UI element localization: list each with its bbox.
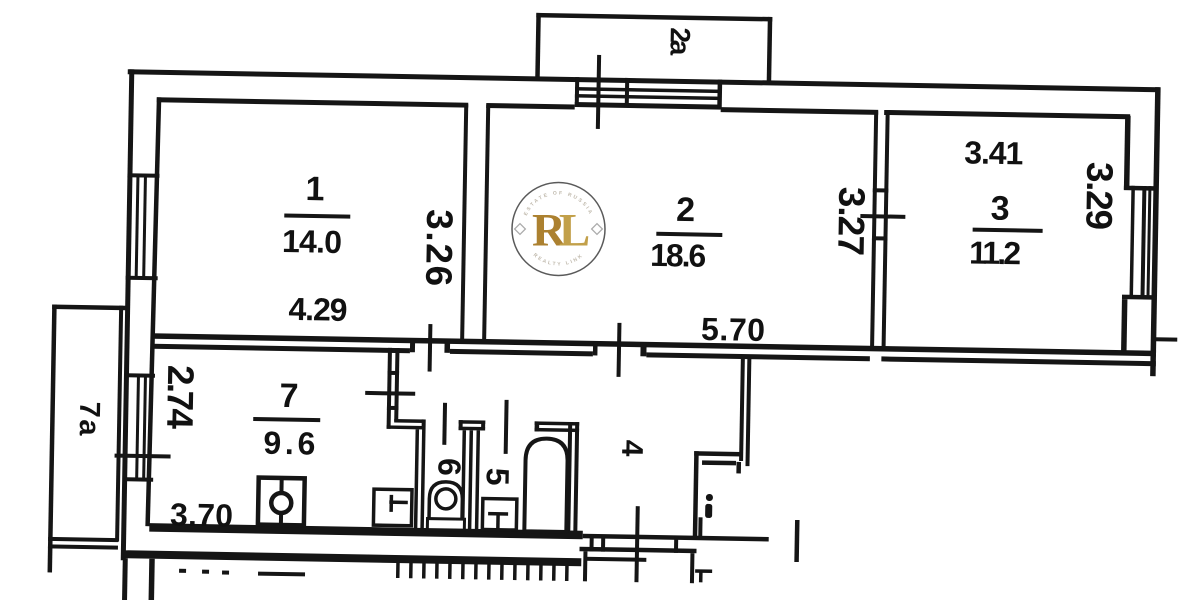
svg-text:2: 2 [676,191,696,229]
svg-text:3.26: 3.26 [418,209,460,287]
svg-text:L: L [559,205,590,257]
svg-text:1: 1 [305,170,325,208]
svg-text:7: 7 [279,377,299,415]
svg-text:6: 6 [431,458,467,476]
svg-text:5: 5 [480,468,516,486]
svg-text:2a: 2a [664,27,695,56]
svg-text:3: 3 [990,190,1010,228]
svg-text:7a: 7a [73,401,106,436]
svg-text:3.41: 3.41 [964,134,1024,171]
svg-text:5.70: 5.70 [701,311,766,348]
svg-text:18.6: 18.6 [650,237,707,274]
svg-text:3.27: 3.27 [830,187,872,257]
svg-text:4: 4 [615,439,648,457]
svg-text:11.2: 11.2 [969,234,1022,271]
svg-text:4.29: 4.29 [288,291,348,328]
svg-text:14.0: 14.0 [282,223,343,260]
svg-text:3.70: 3.70 [170,496,234,533]
svg-text:3.29: 3.29 [1078,162,1120,231]
svg-text:9.6: 9.6 [263,425,316,462]
svg-text:2.74: 2.74 [159,365,201,430]
